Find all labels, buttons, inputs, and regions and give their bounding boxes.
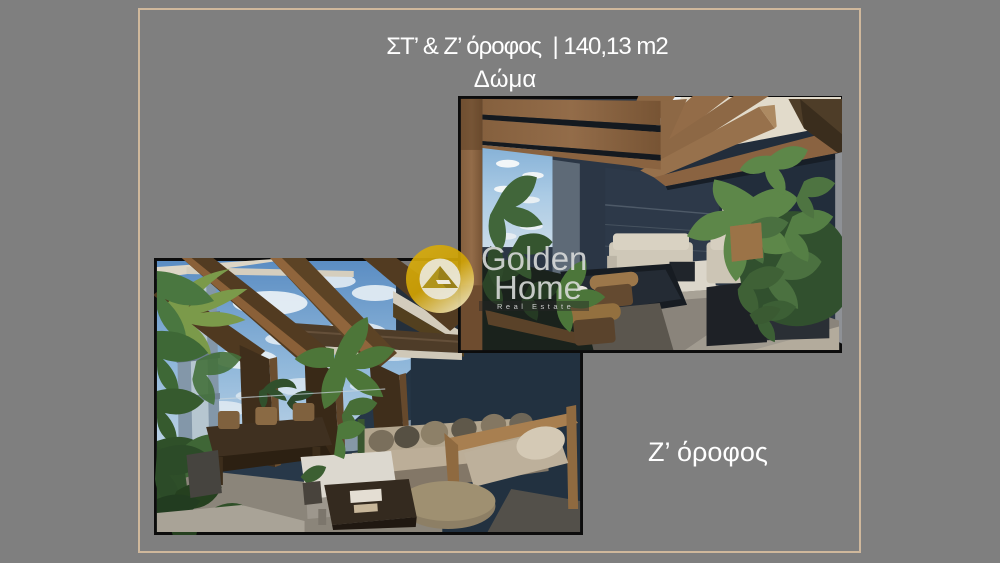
svg-text:Real Estate: Real Estate xyxy=(497,302,574,311)
svg-text:Home: Home xyxy=(494,269,582,306)
